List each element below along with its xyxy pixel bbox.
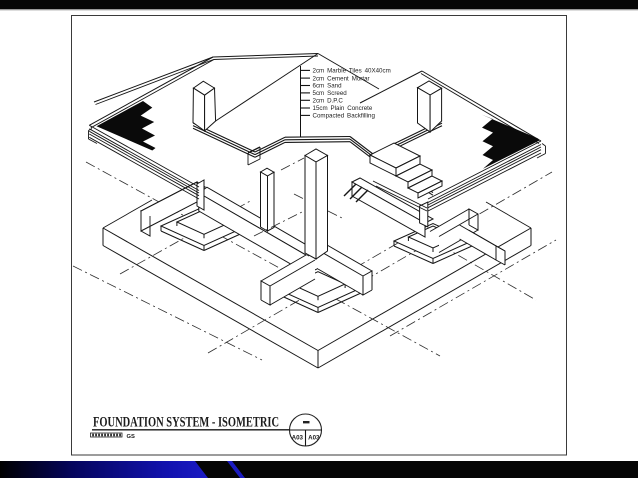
svg-text:2cm D.P.C: 2cm D.P.C — [313, 98, 344, 105]
svg-text:A03: A03 — [292, 435, 304, 442]
svg-text:15cm Plain Concrete: 15cm Plain Concrete — [313, 105, 373, 112]
svg-text:FOUNDATION SYSTEM - ISOMETRIC: FOUNDATION SYSTEM - ISOMETRIC — [93, 415, 279, 431]
svg-text:2cm Cement Mortar: 2cm Cement Mortar — [313, 75, 370, 82]
svg-text:6cm Sand: 6cm Sand — [313, 83, 343, 90]
svg-text:5cm Screed: 5cm Screed — [313, 90, 348, 97]
svg-text:GS: GS — [127, 434, 136, 440]
svg-text:Compacted Backfilling: Compacted Backfilling — [313, 113, 376, 120]
svg-text:A03: A03 — [308, 435, 320, 442]
svg-text:2cm Marble Tiles 40X40cm: 2cm Marble Tiles 40X40cm — [313, 68, 391, 75]
